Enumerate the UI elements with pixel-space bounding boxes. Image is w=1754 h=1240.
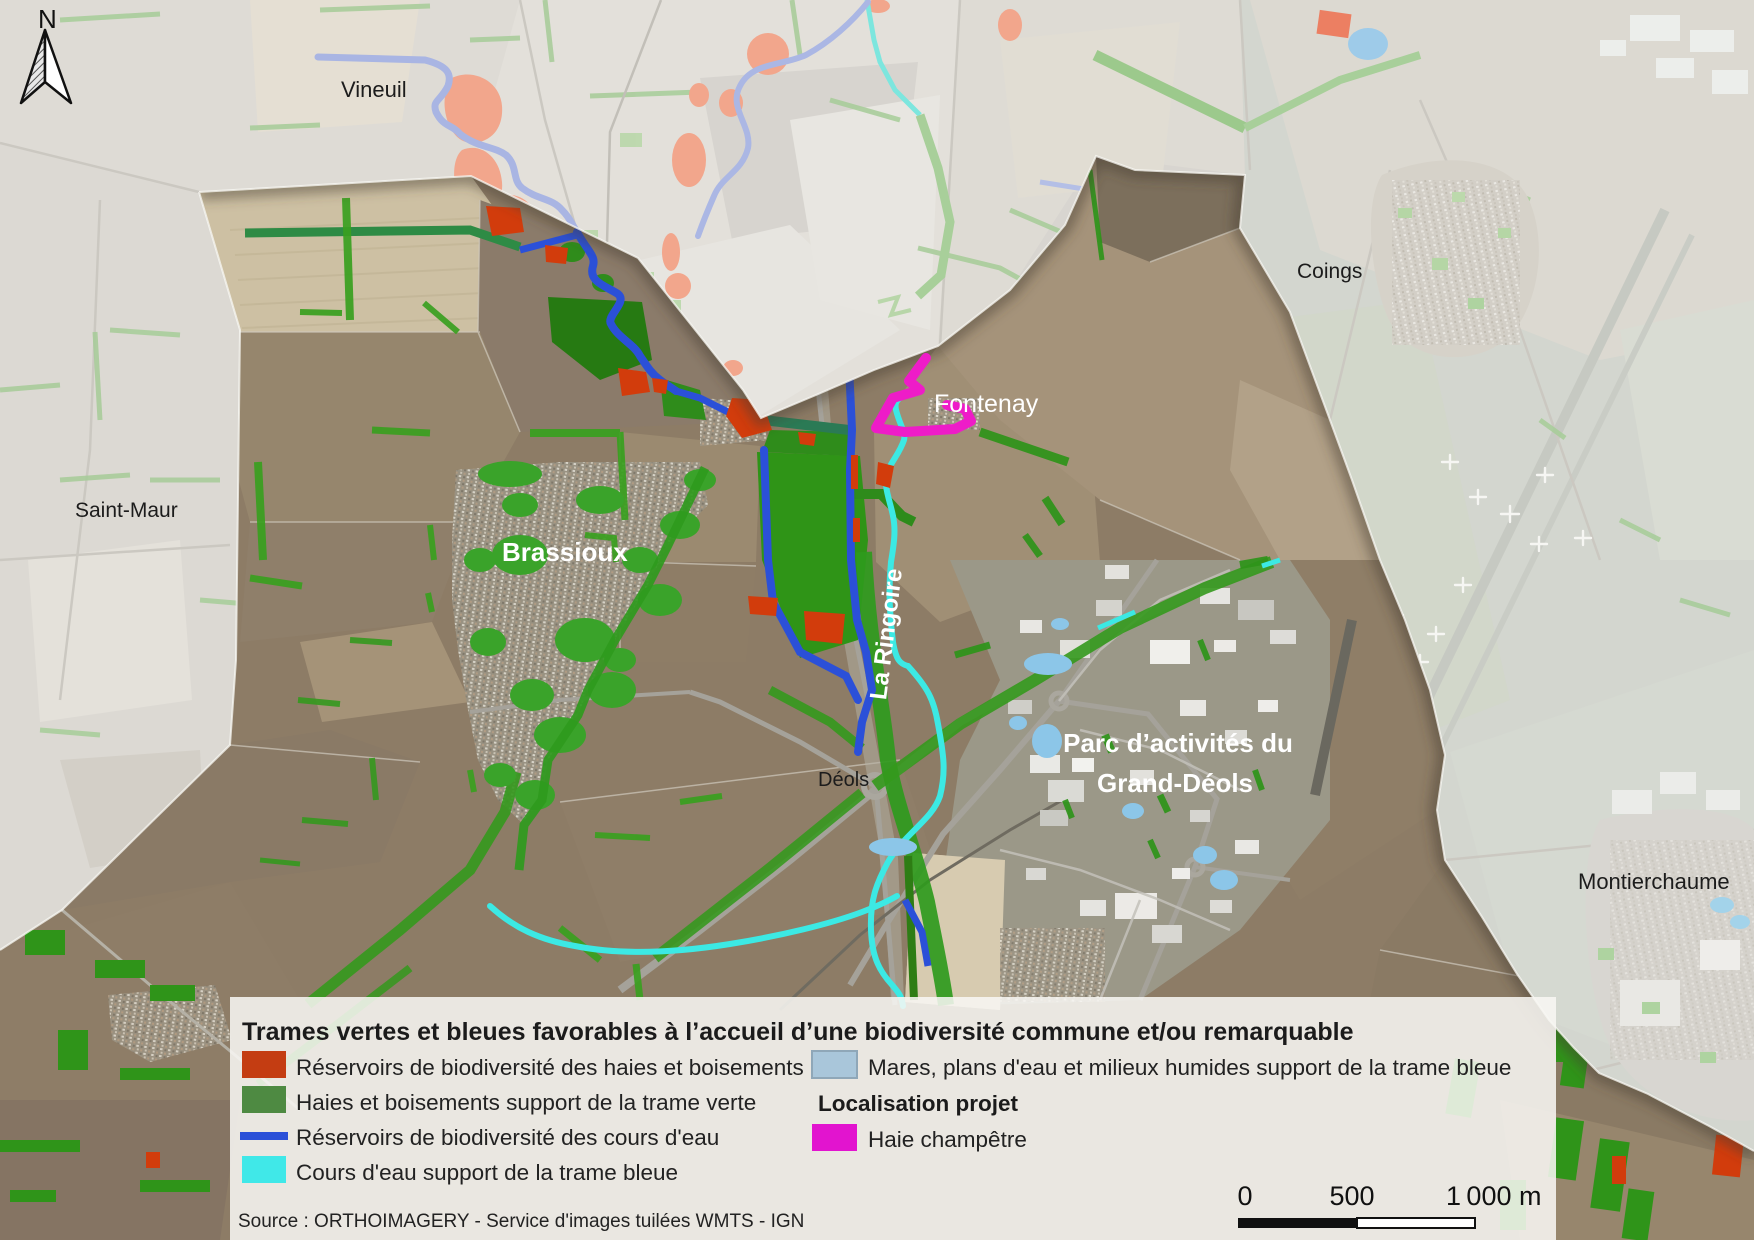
svg-text:Saint-Maur: Saint-Maur [75, 499, 178, 522]
svg-text:Réservoirs de biodiversité des: Réservoirs de biodiversité des haies et … [296, 1055, 804, 1080]
svg-text:Source : ORTHOIMAGERY - Servic: Source : ORTHOIMAGERY - Service d'images… [238, 1211, 804, 1232]
svg-text:Réservoirs de biodiversité des: Réservoirs de biodiversité des cours d'e… [296, 1125, 719, 1150]
svg-text:Vineuil: Vineuil [341, 77, 407, 102]
svg-text:Cours d'eau support de la tram: Cours d'eau support de la trame bleue [296, 1160, 678, 1185]
svg-text:Parc d’activités du: Parc d’activités du [1063, 728, 1293, 758]
svg-text:Fontenay: Fontenay [934, 390, 1039, 418]
svg-text:Montierchaume: Montierchaume [1578, 869, 1730, 894]
svg-text:Haie champêtre: Haie champêtre [868, 1127, 1027, 1152]
svg-text:0: 0 [1237, 1181, 1252, 1211]
svg-text:Mares, plans d'eau et milieux: Mares, plans d'eau et milieux humides su… [868, 1055, 1511, 1080]
svg-text:Localisation projet: Localisation projet [818, 1091, 1019, 1116]
svg-text:Coings: Coings [1297, 260, 1362, 283]
svg-text:Trames vertes et bleues favora: Trames vertes et bleues favorables à l’a… [242, 1018, 1354, 1046]
svg-text:N: N [38, 4, 57, 34]
svg-text:Haies et boisements support de: Haies et boisements support de la trame … [296, 1090, 756, 1115]
svg-text:Déols: Déols [818, 769, 869, 791]
svg-text:Grand-Déols: Grand-Déols [1097, 768, 1253, 798]
svg-text:1 000 m: 1 000 m [1446, 1181, 1541, 1211]
svg-text:Brassioux: Brassioux [502, 537, 628, 567]
svg-text:500: 500 [1329, 1181, 1374, 1211]
